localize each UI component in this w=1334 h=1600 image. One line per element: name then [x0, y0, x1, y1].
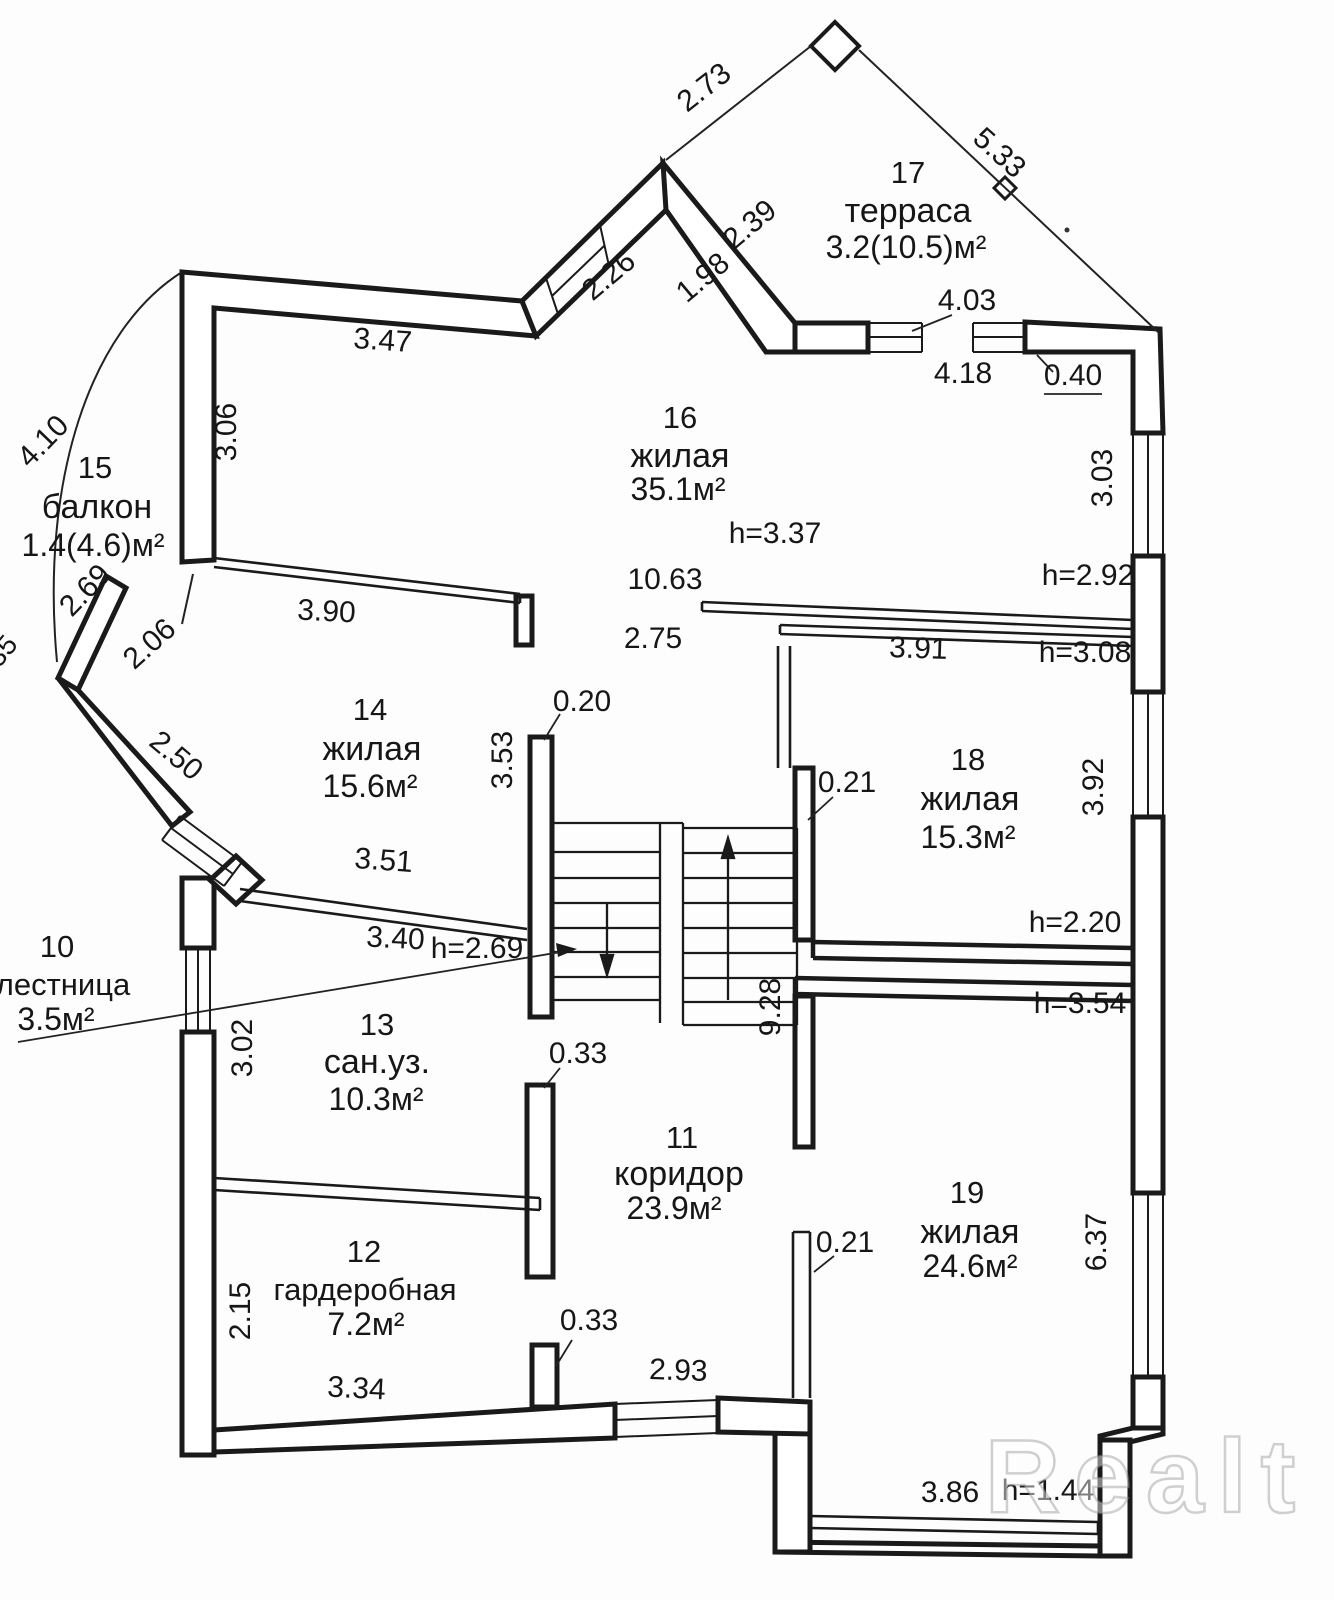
height-room16-right: h=2.92 — [1042, 559, 1135, 592]
dim-2-06: 2.06 — [117, 612, 182, 676]
wall-peak-right — [663, 163, 795, 352]
watermark: Realt — [985, 1419, 1309, 1535]
room13-area: 10.3м² — [329, 1081, 424, 1117]
dim-3-47: 3.47 — [352, 322, 413, 359]
wall-room14-right — [530, 737, 552, 1017]
room19-area: 24.6м² — [923, 1248, 1018, 1284]
wall-bottom-pier — [532, 1345, 557, 1407]
dim-3-86: 3.86 — [921, 1476, 979, 1509]
dim-0-20: 0.20 — [553, 685, 611, 718]
height-room16: h=3.37 — [729, 517, 822, 550]
room13-name: сан.уз. — [324, 1043, 430, 1081]
room16-number: 16 — [663, 400, 697, 435]
room16-name: жилая — [631, 437, 730, 475]
dim-10-63: 10.63 — [627, 563, 702, 596]
dim-3-03: 3.03 — [1086, 449, 1119, 507]
dim-9-28: 9.28 — [754, 978, 787, 1036]
balcony-leader — [182, 574, 193, 624]
window-bottom — [615, 1400, 718, 1437]
wall-ext-bottom — [775, 1542, 1100, 1556]
dim-0-33-b: 0.33 — [560, 1304, 618, 1337]
floor-plan-canvas: 2.73 5.33 2.39 2.26 1.98 3.47 4.03 4.18 … — [0, 0, 1334, 1600]
room11-name: коридор — [614, 1155, 744, 1193]
window-terrace-2 — [973, 323, 1025, 352]
room11-number: 11 — [666, 1120, 698, 1155]
room19-number: 19 — [950, 1175, 984, 1210]
dim-3-40: 3.40 — [365, 921, 425, 957]
dim-3-92: 3.92 — [1077, 758, 1110, 816]
height-room19-top: h=3.54 — [1034, 987, 1127, 1020]
wall-bottom-left — [214, 1404, 615, 1452]
window-right-392 — [1133, 692, 1163, 817]
window-right-303 — [1133, 433, 1163, 556]
wall-ext-left — [775, 1430, 810, 1552]
leader-stair-arrowhead — [556, 943, 577, 957]
dim-3-91: 3.91 — [889, 631, 949, 666]
room15-number: 15 — [78, 450, 112, 485]
dim-0-21-b: 0.21 — [816, 1226, 874, 1259]
floor-plan-page: 2.73 5.33 2.39 2.26 1.98 3.47 4.03 4.18 … — [0, 0, 1334, 1600]
dim-35-partial: 35 — [0, 629, 24, 673]
room14-area: 15.6м² — [323, 768, 418, 804]
room10-name: лестница — [0, 967, 131, 1002]
height-room18-top: h=3.08 — [1039, 636, 1132, 669]
dim-5-33: 5.33 — [967, 121, 1032, 185]
room18-number: 18 — [951, 742, 985, 777]
stair-arrows — [601, 838, 734, 1000]
room18-name: жилая — [921, 780, 1020, 818]
room10-number: 10 — [40, 929, 74, 964]
room15-area: 1.4(4.6)м² — [22, 527, 165, 563]
room12-number: 12 — [347, 1234, 381, 1269]
dim-2-75: 2.75 — [624, 622, 682, 655]
wall-right-pier2 — [1133, 817, 1163, 1193]
dim-3-51: 3.51 — [353, 842, 414, 879]
terrace-dot — [1065, 228, 1070, 233]
wall-sanuz-pier — [527, 1085, 553, 1277]
room19-name: жилая — [921, 1213, 1020, 1251]
room17-number: 17 — [891, 155, 925, 190]
wall-left-upper — [182, 878, 214, 948]
wall-peak-left — [522, 163, 668, 336]
window-right-637 — [1133, 1193, 1163, 1377]
height-room18-bottom: h=2.20 — [1029, 906, 1122, 939]
dim-4-03: 4.03 — [938, 284, 996, 317]
room10-area: 3.5м² — [17, 1001, 94, 1037]
dim-3-90: 3.90 — [296, 594, 356, 630]
dim-2-15: 2.15 — [224, 1282, 257, 1340]
dim-4-10: 4.10 — [11, 409, 75, 474]
dim-3-34: 3.34 — [326, 1371, 386, 1407]
dim-0-33-a: 0.33 — [549, 1037, 607, 1070]
dim-4-18: 4.18 — [934, 357, 992, 390]
column-diamond-large — [811, 22, 859, 70]
wall-terrace-slab — [795, 323, 868, 352]
dim-3-06: 3.06 — [210, 403, 243, 461]
dim-0-21-a: 0.21 — [818, 766, 876, 799]
dim-3-02: 3.02 — [226, 1019, 259, 1077]
room17-name: терраса — [845, 192, 972, 230]
room14-number: 14 — [353, 692, 387, 727]
room14-name: жилая — [323, 730, 422, 768]
room18-area: 15.3м² — [921, 819, 1016, 855]
wall-ext-block — [718, 1398, 810, 1434]
room16-area: 35.1м² — [631, 471, 726, 507]
height-stair: h=2.69 — [431, 932, 524, 965]
terrace-line-533 — [859, 50, 1158, 332]
room15-name: балкон — [42, 488, 152, 526]
dim-6-37: 6.37 — [1080, 1213, 1113, 1271]
dim-2-73: 2.73 — [671, 57, 737, 119]
wall-right-pier1 — [1133, 556, 1163, 692]
dim-0-40: 0.40 — [1044, 359, 1102, 392]
dim-2-93: 2.93 — [649, 1353, 709, 1388]
room12-name: гардеробная — [273, 1272, 456, 1307]
dim-3-53: 3.53 — [486, 731, 519, 789]
room17-area: 3.2(10.5)м² — [826, 229, 987, 265]
room13-number: 13 — [360, 1007, 394, 1042]
wall-left-lower — [182, 1032, 214, 1455]
room11-area: 23.9м² — [627, 1190, 722, 1226]
window-terrace-1 — [868, 323, 922, 352]
room12-area: 7.2м² — [327, 1306, 404, 1342]
